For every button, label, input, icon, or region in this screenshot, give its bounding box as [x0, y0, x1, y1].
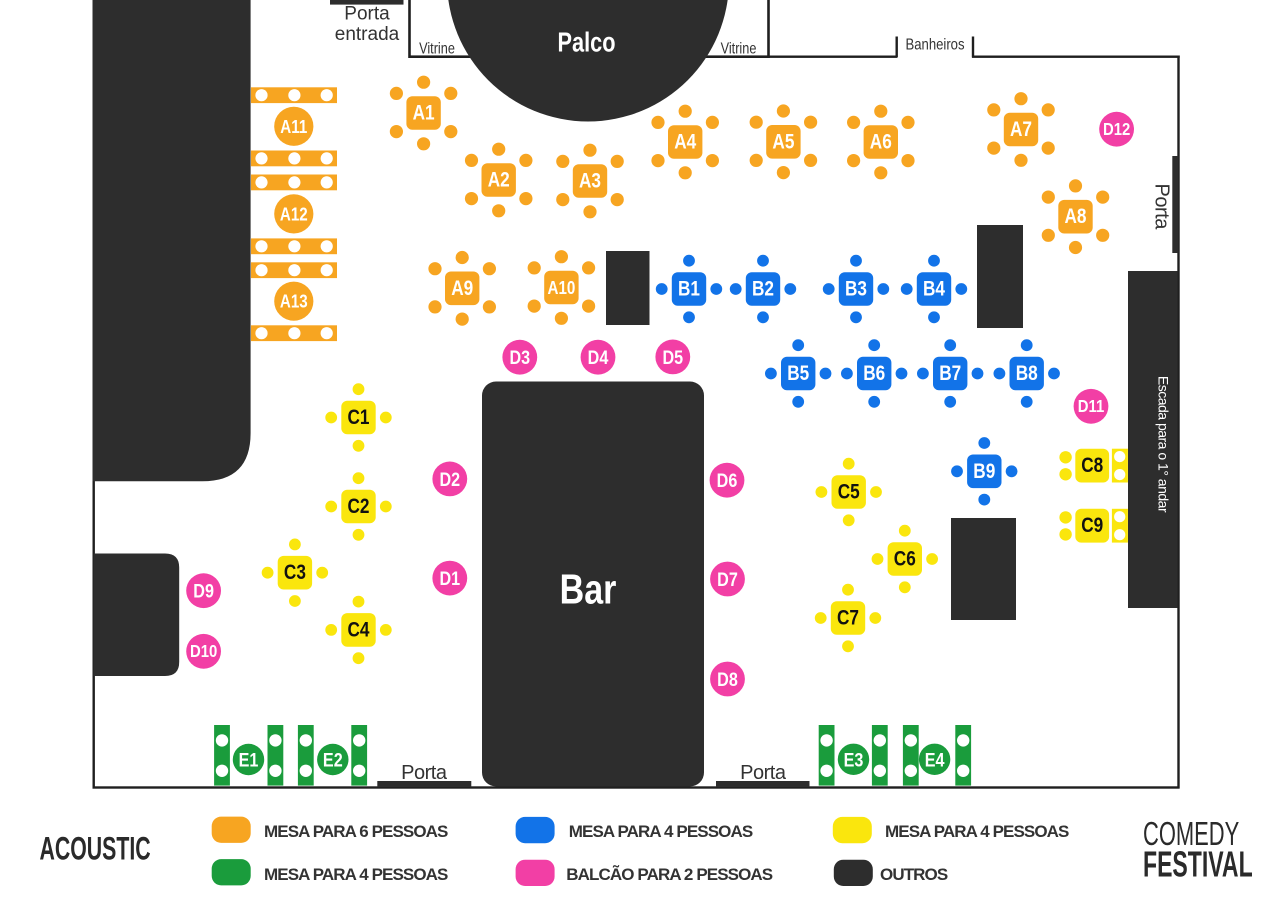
svg-text:Porta: Porta — [401, 762, 448, 784]
svg-text:C2: C2 — [348, 496, 370, 519]
svg-text:E3: E3 — [844, 749, 864, 771]
svg-text:A2: A2 — [488, 169, 510, 192]
svg-text:C8: C8 — [1081, 455, 1103, 478]
svg-text:B4: B4 — [923, 278, 945, 301]
svg-text:A5: A5 — [772, 131, 794, 154]
svg-text:Vitrine: Vitrine — [721, 40, 757, 57]
svg-text:B8: B8 — [1016, 363, 1038, 386]
svg-text:D4: D4 — [588, 347, 609, 369]
svg-text:B6: B6 — [863, 363, 885, 386]
svg-text:A4: A4 — [674, 131, 696, 154]
svg-text:MESA PARA 6 PESSOAS: MESA PARA 6 PESSOAS — [264, 822, 448, 841]
svg-text:D5: D5 — [662, 347, 683, 369]
svg-text:B7: B7 — [939, 363, 961, 386]
svg-text:C4: C4 — [348, 619, 370, 642]
svg-text:A6: A6 — [870, 131, 892, 154]
svg-text:ACOUSTIC: ACOUSTIC — [40, 830, 151, 867]
svg-text:FESTIVAL: FESTIVAL — [1143, 846, 1253, 885]
svg-text:BALCÃO PARA 2 PESSOAS: BALCÃO PARA 2 PESSOAS — [566, 864, 772, 884]
svg-text:Palco: Palco — [558, 28, 616, 58]
svg-text:C6: C6 — [894, 548, 916, 571]
svg-text:A12: A12 — [280, 204, 308, 225]
svg-text:D12: D12 — [1103, 120, 1130, 139]
svg-text:C3: C3 — [284, 562, 306, 585]
svg-text:E1: E1 — [239, 749, 259, 771]
svg-text:E2: E2 — [323, 749, 343, 771]
svg-text:Escada para o 1° andar: Escada para o 1° andar — [1156, 376, 1172, 513]
svg-text:E4: E4 — [925, 749, 945, 771]
svg-text:D10: D10 — [190, 642, 217, 661]
svg-text:C9: C9 — [1081, 515, 1103, 538]
svg-text:B3: B3 — [845, 278, 867, 301]
svg-text:A10: A10 — [547, 278, 575, 299]
svg-text:D1: D1 — [439, 568, 460, 590]
svg-text:D8: D8 — [717, 669, 738, 691]
svg-text:Porta: Porta — [740, 762, 787, 784]
svg-text:D11: D11 — [1078, 397, 1104, 416]
svg-text:B2: B2 — [752, 278, 774, 301]
svg-text:Vitrine: Vitrine — [419, 40, 455, 57]
svg-text:C1: C1 — [348, 407, 370, 430]
svg-text:A9: A9 — [451, 277, 473, 300]
svg-text:D3: D3 — [509, 347, 530, 369]
svg-text:D7: D7 — [717, 569, 738, 591]
svg-text:B5: B5 — [787, 363, 809, 386]
svg-text:Bar: Bar — [560, 566, 617, 613]
svg-text:C7: C7 — [837, 607, 859, 630]
svg-text:Porta: Porta — [1151, 184, 1173, 231]
svg-text:Banheiros: Banheiros — [905, 36, 964, 53]
svg-text:A3: A3 — [579, 170, 601, 193]
svg-text:A1: A1 — [413, 102, 435, 125]
svg-text:MESA PARA 4 PESSOAS: MESA PARA 4 PESSOAS — [569, 822, 753, 841]
svg-text:MESA PARA 4 PESSOAS: MESA PARA 4 PESSOAS — [264, 865, 448, 884]
svg-text:OUTROS: OUTROS — [880, 865, 948, 884]
svg-text:B1: B1 — [678, 278, 700, 301]
svg-text:D6: D6 — [717, 470, 738, 492]
svg-text:entrada: entrada — [335, 24, 400, 45]
svg-text:A11: A11 — [280, 116, 307, 137]
svg-text:B9: B9 — [973, 460, 995, 483]
svg-text:A13: A13 — [280, 291, 308, 312]
svg-text:D2: D2 — [439, 469, 460, 491]
svg-text:A8: A8 — [1065, 206, 1087, 229]
svg-text:MESA PARA 4 PESSOAS: MESA PARA 4 PESSOAS — [885, 822, 1069, 841]
svg-text:D9: D9 — [193, 580, 214, 602]
svg-text:C5: C5 — [838, 481, 860, 504]
svg-text:A7: A7 — [1010, 119, 1032, 142]
svg-text:Porta: Porta — [344, 4, 390, 25]
